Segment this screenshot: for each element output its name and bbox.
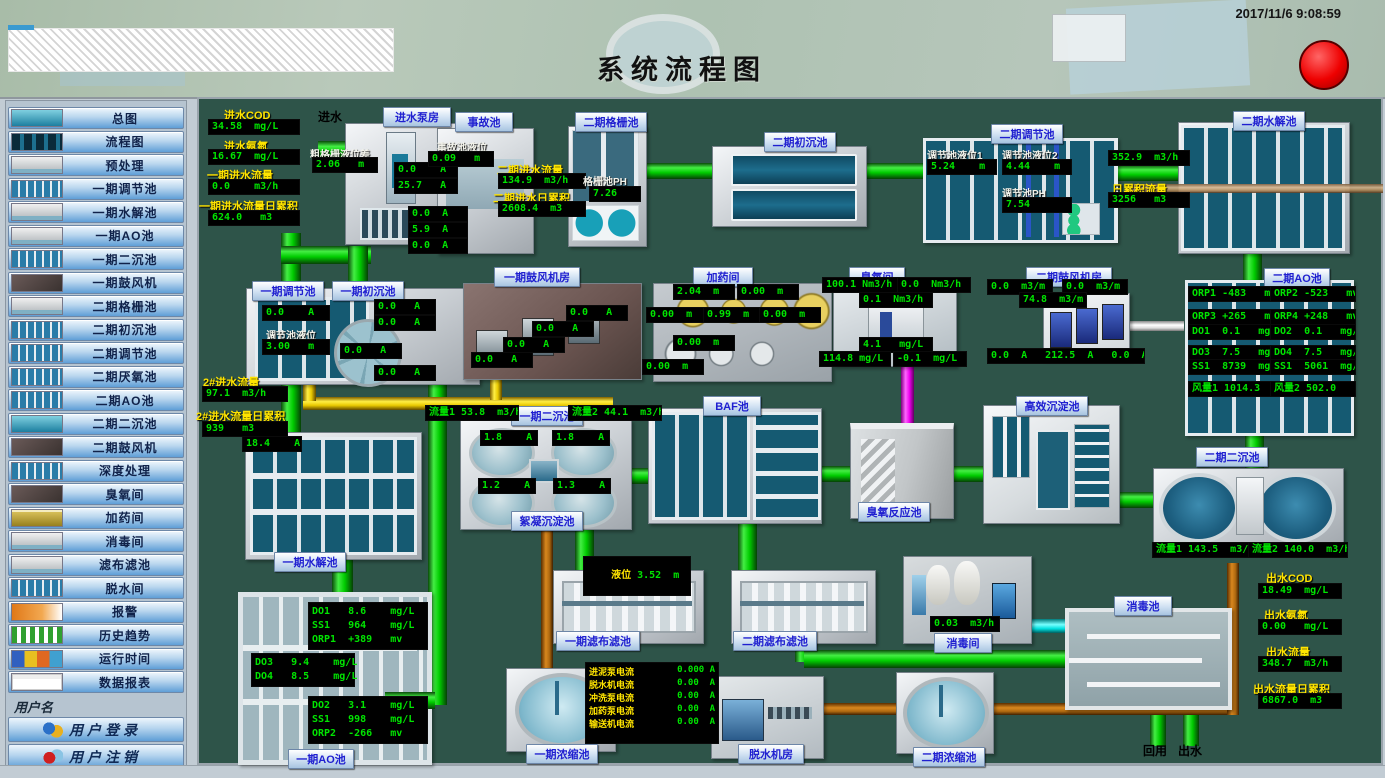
sidebar-item-alarm[interactable]: 报警: [8, 601, 184, 623]
sidebar-item-runtime[interactable]: 运行时间: [8, 648, 184, 670]
header-photo-building: [1052, 14, 1126, 62]
filter-axis: [740, 601, 864, 606]
bar-chart-icon: [11, 650, 63, 668]
dewatering-row: 进泥泵电流0.000 A: [589, 665, 715, 678]
datetime-display: 2017/11/6 9:08:59: [1235, 6, 1341, 21]
sidebar-item-disinfection-room[interactable]: 消毒间: [8, 530, 184, 552]
dewatering-panel: 进泥泵电流0.000 A 脱水机电流0.00 A 冲洗泵电流0.00 A 加药泵…: [585, 662, 719, 744]
dose-level-6: 0.00 m: [673, 335, 735, 351]
tank-walkway: [250, 473, 417, 479]
cloth-filter-1-label[interactable]: 一期滤布滤池: [556, 631, 640, 651]
tank-cells: [1181, 189, 1345, 251]
user-login-button[interactable]: 用户登录: [8, 717, 184, 742]
ao1-do4: DO4 8.5 mg/L: [255, 670, 351, 684]
thumbnail-icon: [11, 579, 63, 597]
ao2-do2: DO2 0.1 mg/L: [1270, 324, 1356, 340]
ao1-do1: DO1 8.6 mg/L: [312, 605, 424, 619]
blower-unit: [1050, 312, 1072, 348]
chemical-tank: [926, 565, 950, 605]
sidebar-item-p1-blower[interactable]: 一期鼓风机: [8, 272, 184, 294]
reg1-current: 0.0 A: [262, 305, 330, 321]
sed1a-current-3: 0.0 A: [340, 343, 402, 359]
pipe-yellow: [303, 383, 316, 401]
clarifier-circle: [1159, 473, 1239, 543]
sidebar-item-dewatering[interactable]: 脱水间: [8, 577, 184, 599]
thumbnail-icon: [11, 297, 63, 315]
high-eff-sed-building: [983, 405, 1120, 524]
sidebar-item-general-map[interactable]: 总图: [8, 107, 184, 129]
center-building: [1236, 477, 1264, 535]
thumbnail-icon: [11, 227, 63, 245]
thickener-2-label[interactable]: 二期浓缩池: [913, 747, 985, 767]
pump-house-label[interactable]: 进水泵房: [383, 107, 451, 127]
sidebar-item-ozone-room[interactable]: 臭氧间: [8, 483, 184, 505]
accident-pool-label[interactable]: 事故池: [455, 112, 513, 132]
sed1a-current-2: 0.0 A: [374, 315, 436, 331]
filter1-level-value: 3.52 m: [637, 570, 679, 581]
outflow-text: 出水: [1178, 742, 1202, 759]
inflow-text: 进水: [318, 108, 342, 125]
report-icon: [11, 673, 63, 691]
baffle: [1087, 634, 1220, 639]
pipe-green: [1108, 165, 1182, 181]
out-flow-value: 348.7 m3/h: [1258, 656, 1342, 672]
ao1-orp1: ORP1 +389 mv: [312, 633, 424, 647]
tank-walkway: [250, 509, 417, 515]
blower-unit: [1076, 308, 1098, 344]
sidebar-nav: 总图 流程图 预处理 一期调节池 一期水解池 一期AO池 一期二沉池 一期鼓风机…: [5, 100, 187, 770]
flow2-total-value: 939 m3: [202, 421, 288, 437]
p2-secondary-sed-panel: [1153, 468, 1344, 547]
alarm-indicator-light[interactable]: [1299, 40, 1349, 90]
p1-primary-sed-label[interactable]: 一期初沉池: [332, 281, 404, 301]
p2-inflow-total-value: 2608.4 m3: [498, 201, 586, 217]
ozone-conc-3: -0.1 mg/L: [893, 351, 967, 367]
ao2-ss2: SS1 5061 mg/L: [1270, 359, 1356, 375]
thumbnail-icon: [11, 415, 63, 433]
user-login-icon: [43, 722, 63, 738]
ao1-ss1: SS1 964 mg/L: [312, 619, 424, 633]
thickener-1-label[interactable]: 一期浓缩池: [526, 744, 598, 764]
p2-secondary-sed-label[interactable]: 二期二沉池: [1196, 447, 1268, 467]
ao1-panel-b: DO3 9.4 mg/L DO4 8.5 mg/L: [251, 653, 355, 687]
out-cod-value: 18.49 mg/L: [1258, 583, 1342, 599]
blw1-current-4: 0.0 A: [471, 352, 533, 368]
disinfection-pool-label[interactable]: 消毒池: [1114, 596, 1172, 616]
reuse-text: 回用: [1143, 742, 1167, 759]
thumbnail-icon: [11, 109, 63, 127]
sidebar-item-dosing-room[interactable]: 加药间: [8, 507, 184, 529]
bottom-window-strip: [0, 765, 1385, 778]
thumbnail-icon: [11, 509, 63, 527]
dose-level-7: 0.00 m: [642, 359, 704, 375]
reg2-level1-value: 5.24 m: [927, 159, 997, 175]
tank-cells: [250, 437, 417, 555]
disinfection-room-label[interactable]: 消毒间: [934, 633, 992, 653]
thickener-rake: [555, 681, 559, 715]
sidebar-item-p2-secondary-sed[interactable]: 二期二沉池: [8, 413, 184, 435]
sidebar-item-p1-ao[interactable]: 一期AO池: [8, 225, 184, 247]
dose-level-3: 0.00 m: [646, 307, 708, 323]
thumbnail-icon: [11, 462, 63, 480]
dose-level-1: 2.04 m: [673, 284, 735, 300]
basin: [731, 189, 857, 221]
filter1-level: 液位3.52 m: [583, 556, 691, 596]
header-banner: 系统流程图 2017/11/6 9:08:59: [0, 0, 1385, 99]
sidebar-item-p2-blower[interactable]: 二期鼓风机: [8, 436, 184, 458]
dosing-column: [912, 575, 926, 615]
accident-current-3: 0.0 A: [408, 238, 468, 254]
sed1-current-2: 1.8 A: [552, 430, 610, 446]
p2-inflow-value: 134.9 m3/h: [498, 173, 586, 189]
out-total-value: 6867.0 m3: [1258, 693, 1342, 709]
thumbnail-icon: [11, 344, 63, 362]
sidebar-item-p2-anaerobic[interactable]: 二期厌氧池: [8, 366, 184, 388]
blw1-current-3: 0.0 A: [503, 337, 565, 353]
accident-current-2: 5.9 A: [408, 222, 468, 238]
blw2-currents: 0.0 A 212.5 A 0.0 A: [987, 348, 1145, 364]
disinfection-flow: 0.03 m3/h: [930, 616, 1000, 632]
sidebar-item-p2-regulating[interactable]: 二期调节池: [8, 342, 184, 364]
ao2-air1: 风量1 1014.3: [1188, 381, 1280, 397]
ao1-do2: DO2 3.1 mg/L: [312, 699, 424, 713]
p1-ao-label[interactable]: 一期AO池: [288, 749, 354, 769]
sed-window: [992, 416, 1030, 478]
thickener-rake: [939, 685, 943, 717]
thumbnail-icon: [11, 391, 63, 409]
pipe-green: [948, 466, 988, 482]
sidebar-item-data-report[interactable]: 数据报表: [8, 671, 184, 693]
conveyor: [768, 707, 812, 719]
dosing-pump: [992, 583, 1016, 619]
thickener-circle: [903, 677, 989, 749]
p2-ao-label[interactable]: 二期AO池: [1264, 268, 1330, 288]
p2-primary-sed-tank: [712, 146, 867, 227]
ao2-orp2: ORP2 -523 mv: [1270, 286, 1356, 302]
hyd2-total-value: 3256 m3: [1108, 192, 1190, 208]
baf-label[interactable]: BAF池: [703, 396, 761, 416]
sidebar-item-history-trend[interactable]: 历史趋势: [8, 624, 184, 646]
belt-press: [722, 699, 764, 741]
dewatering-row: 加药泵电流0.00 A: [589, 704, 715, 717]
reg1-level-value: 3.00 m: [262, 339, 330, 355]
accident-level-value: 0.09 m: [428, 151, 494, 167]
ozone-flow-3: 0.1 Nm3/h: [859, 292, 933, 308]
reactor-stairs: [861, 439, 895, 509]
hyd1-current: 18.4 A: [242, 436, 302, 452]
pipe-green: [860, 163, 926, 179]
tank-rows: [753, 412, 821, 520]
thumbnail-icon: [11, 485, 63, 503]
disinfection-pool: [1065, 608, 1232, 710]
ozone-flow-1: 100.1 Nm3/h: [822, 277, 900, 293]
dose-level-2: 0.00 m: [737, 284, 799, 300]
dewatering-row: 输送机电流0.00 A: [589, 717, 715, 730]
pipe-green: [738, 518, 757, 574]
tank-cells: [652, 412, 750, 520]
ao2-orp3: ORP3 +265 mv: [1188, 309, 1276, 325]
coarse-screen-level-value: 2.06 m: [312, 157, 378, 173]
header-photo-pond: [1066, 0, 1250, 95]
sed1-current-4: 1.3 A: [553, 478, 611, 494]
sidebar-item-p1-secondary-sed[interactable]: 一期二沉池: [8, 248, 184, 270]
baffle: [1087, 682, 1220, 687]
dose-level-4: 0.99 m: [703, 307, 765, 323]
sed-window: [1036, 430, 1070, 510]
dewatering-row: 脱水机电流0.00 A: [589, 678, 715, 691]
p1-inflow-value: 0.0 m3/h: [208, 179, 300, 195]
ozone-conc-2: 114.8 mg/L: [819, 351, 891, 367]
sidebar-item-advanced-treatment[interactable]: 深度处理: [8, 460, 184, 482]
high-eff-sed-label[interactable]: 高效沉淀池: [1016, 396, 1088, 416]
pipe-green: [643, 163, 715, 179]
sed1a-current-1: 0.0 A: [374, 299, 436, 315]
dose-level-5: 0.00 m: [759, 307, 821, 323]
dewatering-room-label[interactable]: 脱水机房: [738, 744, 804, 764]
thumbnail-icon: [11, 321, 63, 339]
out-nh3-value: 0.00 mg/L: [1258, 619, 1342, 635]
scada-window: 系统流程图 2017/11/6 9:08:59 总图 流程图 预处理 一期调节池…: [0, 0, 1385, 778]
ozone-generator-detail: [880, 312, 892, 338]
p1-blower-label[interactable]: 一期鼓风机房: [494, 267, 580, 287]
sed1a-current-4: 0.0 A: [374, 365, 436, 381]
blw1-current-2: 0.0 A: [532, 321, 594, 337]
ao2-ss1: SS1 8739 mg/L: [1188, 359, 1276, 375]
sidebar-item-p2-primary-sed[interactable]: 二期初沉池: [8, 319, 184, 341]
blw1-current-1: 0.0 A: [566, 305, 628, 321]
thumbnail-icon: [11, 133, 63, 151]
ao1-do3: DO3 9.4 mg/L: [255, 656, 351, 670]
trend-chart-icon: [11, 626, 63, 644]
ao2-air2: 风量2 502.0: [1270, 381, 1356, 397]
p1-hydrolysis-label[interactable]: 一期水解池: [274, 552, 346, 572]
chemical-tank: [954, 561, 980, 605]
header-masked-logo-area: [8, 28, 394, 72]
alarm-icon: [11, 603, 63, 621]
hyd2-flow-value: 352.9 m3/h: [1108, 150, 1190, 166]
p1-inflow-total-value: 624.0 m3: [208, 210, 300, 226]
thumbnail-icon: [11, 532, 63, 550]
tank-cells: [1181, 125, 1345, 187]
username-label: 用户名: [14, 697, 184, 715]
blw2-air-3: 74.8 m3/m: [1019, 292, 1087, 308]
p2-primary-sed-label[interactable]: 二期初沉池: [764, 132, 836, 152]
inlet-cod-value: 34.58 mg/L: [208, 119, 300, 135]
user-logout-icon: [43, 749, 63, 765]
sed1-current-1: 1.8 A: [480, 430, 538, 446]
thumbnail-icon: [11, 203, 63, 221]
sidebar-item-cloth-filter[interactable]: 滤布滤池: [8, 554, 184, 576]
ao1-orp2: ORP2 -266 mv: [312, 727, 424, 741]
baffle: [1069, 658, 1202, 663]
sidebar-item-p1-regulating[interactable]: 一期调节池: [8, 178, 184, 200]
ozone-flow-2: 0.0 Nm3/h: [897, 277, 971, 293]
ao2-orp4: ORP4 +248 mv: [1270, 309, 1356, 325]
filter1-level-label: 液位: [611, 570, 631, 581]
sidebar-item-p2-grating[interactable]: 二期格栅池: [8, 295, 184, 317]
filter-drum: [740, 581, 868, 633]
sed2-flow-2: 流量2 140.0 m3/h: [1248, 542, 1348, 558]
flow2-value: 97.1 m3/h: [202, 386, 288, 402]
sed1-current-3: 1.2 A: [478, 478, 536, 494]
header-masked-logo-tab: [8, 25, 34, 30]
thumbnail-icon: [11, 180, 63, 198]
pump-current-2: 25.7 A: [394, 178, 458, 194]
cloth-filter-2-label[interactable]: 二期滤布滤池: [733, 631, 817, 651]
sidebar-item-pretreatment[interactable]: 预处理: [8, 154, 184, 176]
baf-tank: [648, 408, 822, 524]
accident-current-1: 0.0 A: [408, 206, 468, 222]
ao1-ss2: SS1 998 mg/L: [312, 713, 424, 727]
ao2-do1: DO1 0.1 mg/L: [1188, 324, 1276, 340]
blower-unit: [1102, 304, 1124, 340]
sidebar-item-flow-chart[interactable]: 流程图: [8, 131, 184, 153]
dewatering-row: 冲洗泵电流0.00 A: [589, 691, 715, 704]
ozone-reactor-label[interactable]: 臭氧反应池: [858, 502, 930, 522]
thumbnail-icon: [11, 156, 63, 174]
grating-ph-value: 7.26: [589, 186, 641, 202]
thumbnail-icon: [11, 274, 63, 292]
reg2-ph-value: 7.54: [1002, 197, 1072, 213]
inlet-nh3-value: 16.67 mg/L: [208, 149, 300, 165]
thickener-2: [896, 672, 994, 754]
sidebar-item-p2-ao[interactable]: 二期AO池: [8, 389, 184, 411]
ao1-panel-a: DO1 8.6 mg/L SS1 964 mg/L ORP1 +389 mv: [308, 602, 428, 650]
p2-hydrolysis-label[interactable]: 二期水解池: [1233, 111, 1305, 131]
filter-axis: [562, 601, 692, 606]
sed1-flow-2: 流量2 44.1 m3/h: [568, 405, 662, 421]
clarifier-circle: [1256, 473, 1336, 543]
p2-regulating-label[interactable]: 二期调节池: [991, 124, 1063, 144]
thumbnail-icon: [11, 556, 63, 574]
thumbnail-icon: [11, 250, 63, 268]
thumbnail-icon: [11, 368, 63, 386]
pipe-air: [1128, 321, 1184, 331]
p2-grating-label[interactable]: 二期格栅池: [575, 112, 647, 132]
sed2-flow-1: 流量1 143.5 m3/h: [1152, 542, 1252, 558]
sidebar-item-p1-hydrolysis[interactable]: 一期水解池: [8, 201, 184, 223]
flocculation-label[interactable]: 絮凝沉淀池: [511, 511, 583, 531]
pipe-green: [818, 466, 854, 482]
sed1-flow-1: 流量1 53.8 m3/h: [425, 405, 519, 421]
p1-regulating-label[interactable]: 一期调节池: [252, 281, 324, 301]
page-title: 系统流程图: [597, 48, 767, 87]
ao2-orp1: ORP1 -483 mv: [1188, 286, 1276, 302]
sed-window: [1074, 424, 1110, 508]
thumbnail-icon: [11, 438, 63, 456]
ao1-panel-c: DO2 3.1 mg/L SS1 998 mg/L ORP2 -266 mv: [308, 696, 428, 744]
reg2-level2-value: 4.44 m: [1002, 159, 1072, 175]
basin: [731, 154, 857, 186]
